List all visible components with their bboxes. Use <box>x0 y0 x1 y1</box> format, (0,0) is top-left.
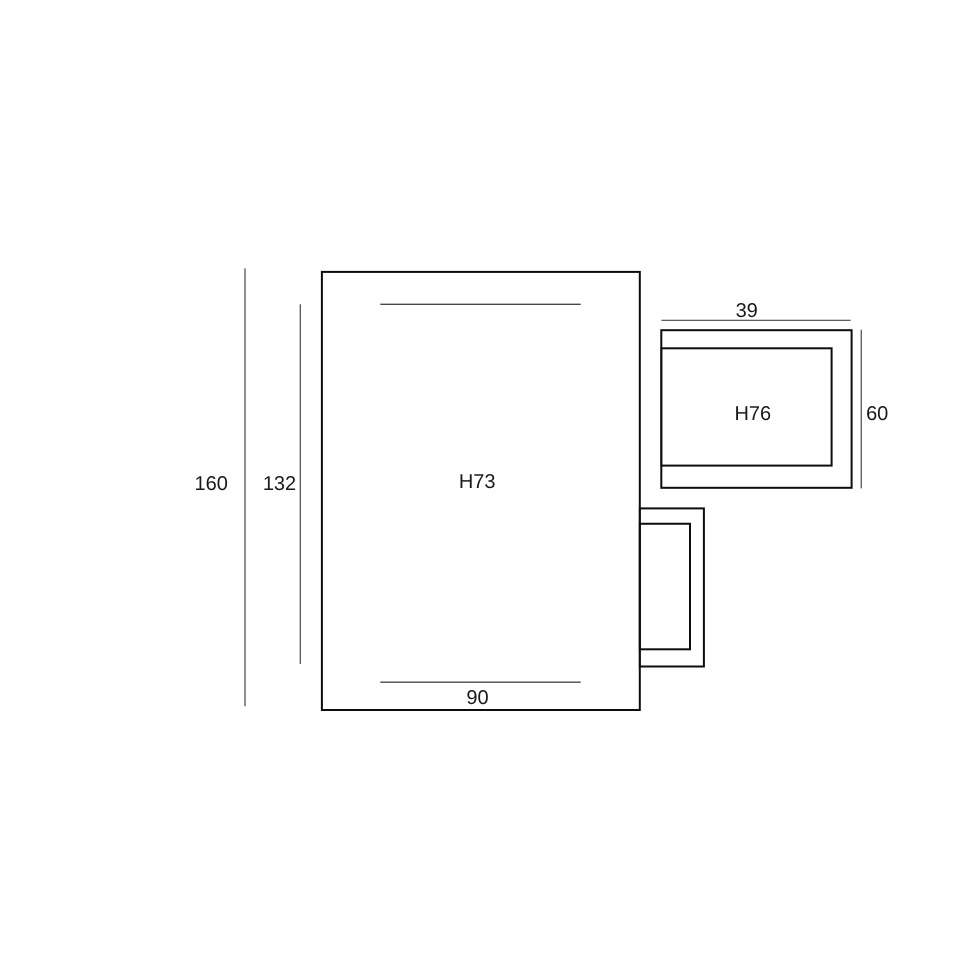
svg-text:60: 60 <box>866 403 888 425</box>
svg-text:160: 160 <box>195 473 228 495</box>
svg-text:132: 132 <box>263 473 296 495</box>
svg-text:H76: H76 <box>734 403 771 425</box>
svg-text:90: 90 <box>466 687 488 709</box>
svg-text:39: 39 <box>736 300 758 322</box>
svg-text:H73: H73 <box>459 471 496 493</box>
